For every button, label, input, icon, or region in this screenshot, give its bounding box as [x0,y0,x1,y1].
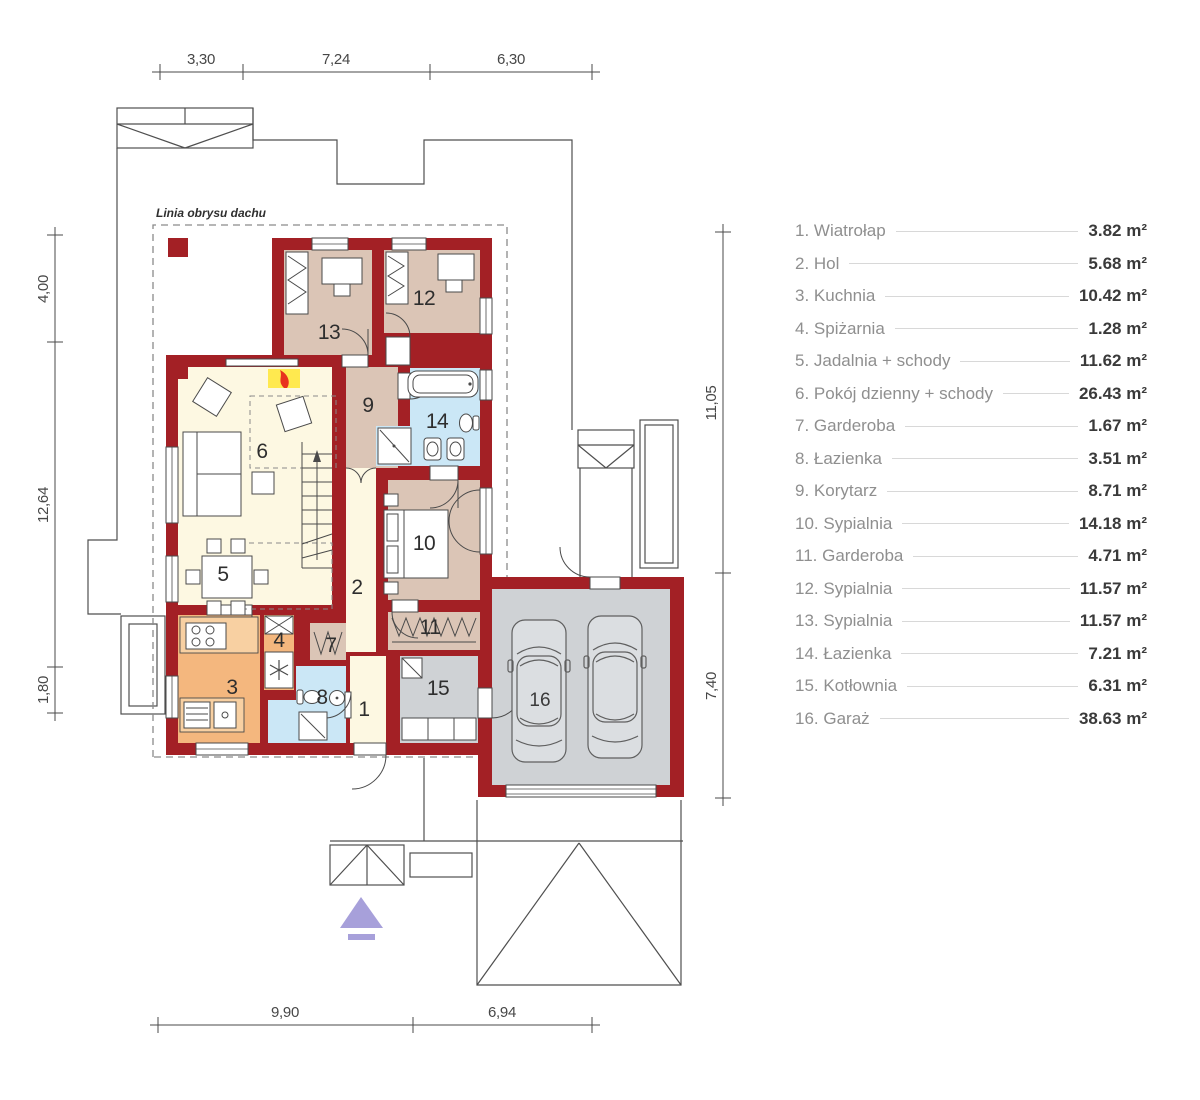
dim-bottom-1: 9,90 [271,1004,299,1021]
chimney-block [168,360,188,379]
leader-line [901,653,1078,654]
legend-room-area: 3.82 m² [1088,221,1147,241]
legend-room-name: 7. Garderoba [795,416,895,436]
utility-shelf [402,718,476,740]
legend-room-name: 14. Łazienka [795,644,891,664]
leader-line [902,621,1070,622]
dim-top-1: 3,30 [187,51,215,68]
stove [186,623,226,649]
legend-room-name: 3. Kuchnia [795,286,875,306]
legend-room-area: 11.62 m² [1080,351,1147,371]
legend-row: 13. Sypialnia11.57 m² [795,605,1147,638]
leader-line [892,458,1078,459]
legend-room-name: 8. Łazienka [795,449,882,469]
room-label-14: 14 [426,410,449,433]
dim-top-2: 7,24 [322,51,350,68]
legend-row: 9. Korytarz8.71 m² [795,475,1147,508]
garage-roof-outline [477,800,681,985]
leader-line [905,426,1078,427]
legend-room-area: 26.43 m² [1079,384,1147,404]
dim-left-3: 1,80 [35,676,52,704]
legend-room-name: 1. Wiatrołap [795,221,886,241]
leader-line [895,328,1079,329]
desk [438,254,474,280]
entrance-arrow-icon [340,897,383,940]
legend-room-area: 11.57 m² [1080,611,1147,631]
legend-room-area: 6.31 m² [1088,676,1147,696]
legend-row: 8. Łazienka3.51 m² [795,443,1147,476]
chimney-block [168,238,188,257]
legend-room-area: 5.68 m² [1088,254,1147,274]
legend-room-area: 7.21 m² [1088,644,1147,664]
legend-room-name: 4. Spiżarnia [795,319,885,339]
leader-line [902,588,1070,589]
leader-line [907,686,1078,687]
nightstand [384,494,398,506]
wardrobe [386,252,408,304]
room-label-16: 16 [529,690,550,711]
entrance-door-gap [354,743,386,755]
legend-row: 4. Spiżarnia1.28 m² [795,313,1147,346]
roof-note-label: Linia obrysu dachu [156,206,267,220]
room-label-11: 11 [420,616,441,639]
legend-row: 1. Wiatrołap3.82 m² [795,215,1147,248]
dim-left-2: 12,64 [35,487,52,523]
legend-room-name: 9. Korytarz [795,481,877,501]
room-hall-floor [346,468,376,652]
coffee-table [252,472,274,494]
legend-room-area: 10.42 m² [1079,286,1147,306]
room-label-8: 8 [316,686,327,709]
room-label-1: 1 [358,698,369,721]
room-label-2: 2 [351,576,362,599]
legend-row: 14. Łazienka7.21 m² [795,638,1147,671]
legend-room-name: 15. Kotłownia [795,676,897,696]
legend-room-name: 11. Garderoba [795,546,903,566]
leader-line [896,231,1079,232]
leader-line [885,296,1069,297]
legend-row: 11. Garderoba4.71 m² [795,540,1147,573]
wardrobe [286,252,308,314]
sideboard [226,359,298,366]
leader-line [960,361,1069,362]
fireplace [268,369,300,388]
leader-line [913,556,1078,557]
legend-room-area: 14.18 m² [1079,514,1147,534]
legend-room-area: 11.57 m² [1080,579,1147,599]
leader-line [902,523,1069,524]
room-legend: 1. Wiatrołap3.82 m² 2. Hol5.68 m² 3. Kuc… [795,215,1147,735]
legend-room-name: 2. Hol [795,254,839,274]
legend-room-name: 5. Jadalnia + schody [795,351,950,371]
legend-room-area: 1.67 m² [1088,416,1147,436]
room-label-10: 10 [413,532,435,555]
dim-bottom-2: 6,94 [488,1004,516,1021]
nightstand [384,582,398,594]
legend-row: 5. Jadalnia + schody11.62 m² [795,345,1147,378]
room-label-12: 12 [413,287,435,310]
dim-top-3: 6,30 [497,51,525,68]
dim-right-1: 11,05 [703,386,720,421]
sink [214,702,236,728]
room-label-5: 5 [217,563,228,586]
legend-room-name: 6. Pokój dzienny + schody [795,384,993,404]
legend-row: 10. Sypialnia14.18 m² [795,508,1147,541]
legend-room-area: 38.63 m² [1079,709,1147,729]
leader-line [880,718,1069,719]
dishwasher [184,702,210,728]
legend-room-name: 10. Sypialnia [795,514,892,534]
desk [322,258,362,284]
legend-room-area: 8.71 m² [1088,481,1147,501]
room-label-7: 7 [325,634,336,657]
room-label-4: 4 [273,629,285,652]
legend-room-name: 12. Sypialnia [795,579,892,599]
legend-room-area: 4.71 m² [1088,546,1147,566]
legend-room-area: 1.28 m² [1088,319,1147,339]
leader-line [887,491,1078,492]
car [584,616,646,758]
leader-line [849,263,1078,264]
garage-gate [506,785,656,797]
legend-room-area: 3.51 m² [1088,449,1147,469]
room-label-13: 13 [318,321,340,344]
terrace-outline [121,616,165,714]
dim-left-1: 4,00 [35,275,52,303]
legend-row: 6. Pokój dzienny + schody26.43 m² [795,378,1147,411]
leader-line [1003,393,1069,394]
legend-row: 15. Kotłownia6.31 m² [795,670,1147,703]
room-label-9: 9 [362,394,373,417]
room-label-3: 3 [226,676,237,699]
toilet [460,414,473,432]
legend-row: 3. Kuchnia10.42 m² [795,280,1147,313]
dim-right-2: 7,40 [703,672,720,700]
legend-room-name: 16. Garaż [795,709,870,729]
room-label-15: 15 [427,677,449,700]
legend-row: 7. Garderoba1.67 m² [795,410,1147,443]
legend-row: 16. Garaż38.63 m² [795,703,1147,736]
room-label-6: 6 [256,440,267,463]
legend-room-name: 13. Sypialnia [795,611,892,631]
legend-row: 2. Hol5.68 m² [795,248,1147,281]
legend-row: 12. Sypialnia11.57 m² [795,573,1147,606]
